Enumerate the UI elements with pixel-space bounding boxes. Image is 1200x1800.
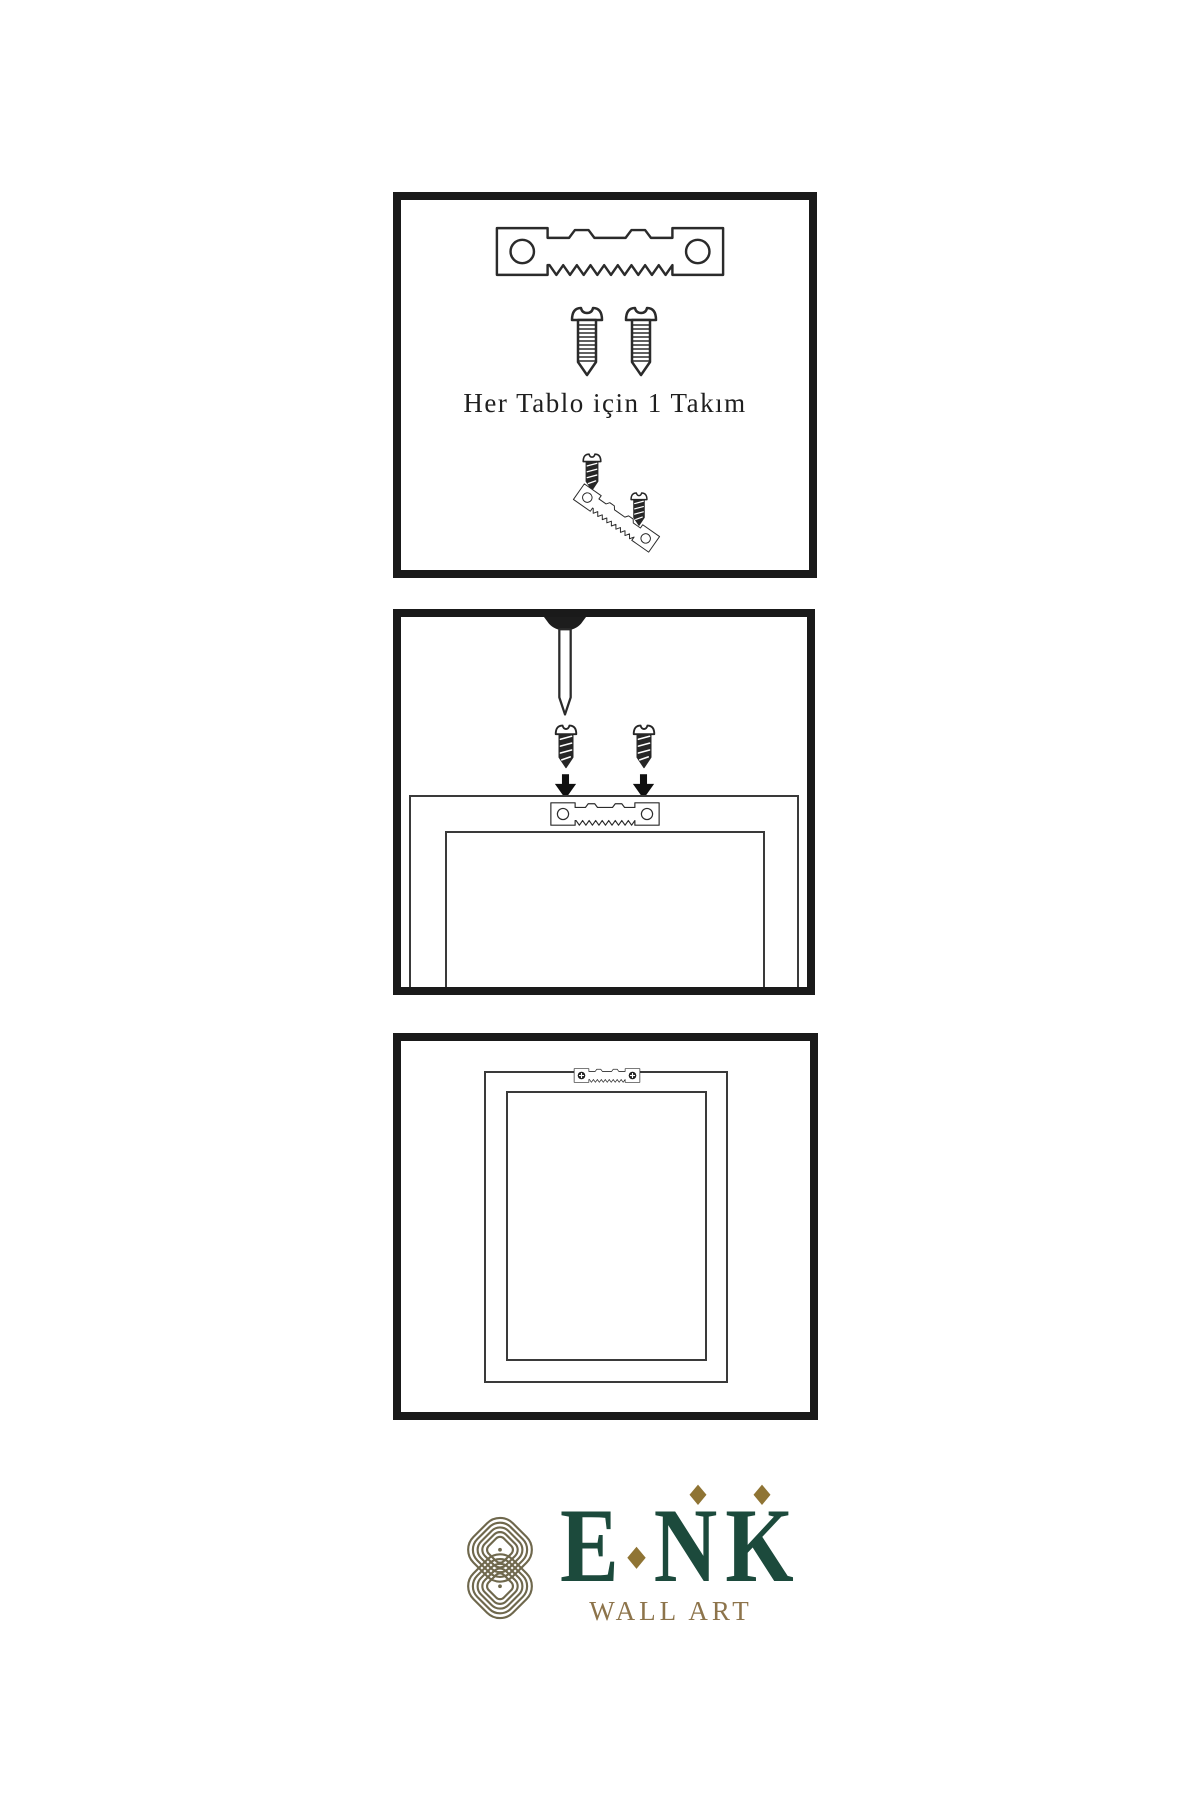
kit-caption: Her Tablo için 1 Takım [401, 386, 809, 420]
screw-icon [569, 304, 605, 382]
step-panel-attach-hanger [393, 609, 815, 995]
frame-back-inner [445, 831, 765, 987]
screw-icon [629, 491, 649, 528]
instruction-sheet: Her Tablo için 1 Takım [0, 0, 1200, 1800]
brand-letter: E [560, 1497, 619, 1598]
diamond-icon [627, 1547, 645, 1569]
screw-icon [553, 723, 579, 771]
screw-icon [631, 723, 657, 771]
nail-icon [542, 616, 588, 722]
screw-icon [623, 304, 659, 382]
brand-tagline: WALL ART [558, 1596, 784, 1627]
sawtooth-hanger-icon [549, 800, 661, 828]
sawtooth-hanger-fastened-icon [573, 1067, 641, 1084]
brand-letter: N [654, 1497, 718, 1598]
brand-letter: K [725, 1497, 793, 1598]
brand-name: E N K [560, 1497, 782, 1598]
step-panel-hang-frame [393, 1033, 818, 1420]
sawtooth-hanger-icon [493, 222, 727, 281]
brand-knot-icon [440, 1508, 560, 1628]
frame-back-inner [506, 1091, 707, 1361]
step-panel-hardware-kit: Her Tablo için 1 Takım [393, 192, 817, 578]
